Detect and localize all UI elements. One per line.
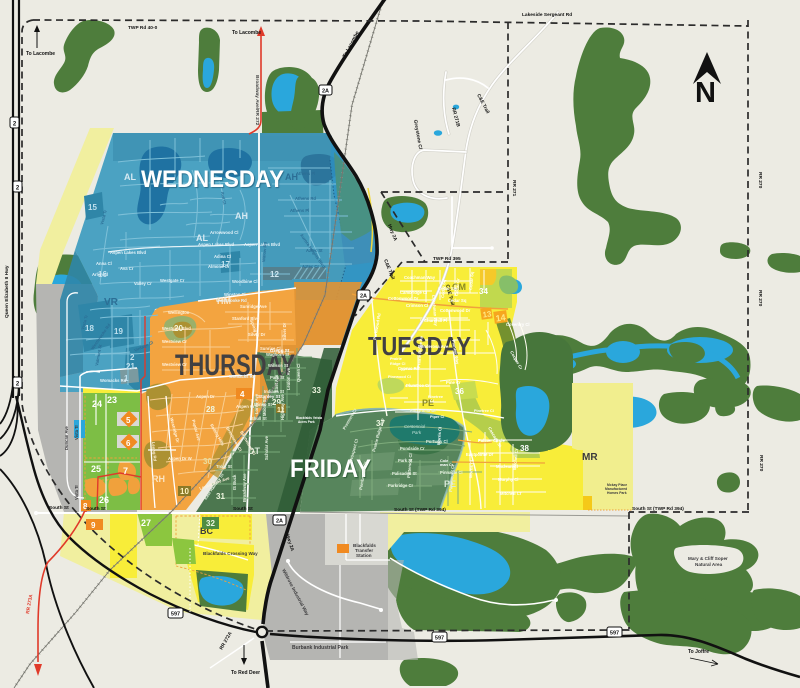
svg-text:24: 24 — [92, 399, 102, 409]
svg-text:Athens Pl: Athens Pl — [296, 171, 315, 176]
svg-text:21: 21 — [126, 362, 135, 371]
svg-text:Natural Area: Natural Area — [695, 562, 723, 567]
svg-text:Coventry Cl: Coventry Cl — [506, 322, 530, 327]
svg-text:Willson St: Willson St — [268, 363, 289, 368]
svg-text:RR 270: RR 270 — [757, 290, 763, 307]
svg-text:IS Buck: IS Buck — [232, 474, 237, 490]
svg-text:WEDNESDAY: WEDNESDAY — [141, 166, 284, 193]
svg-text:Aspen Dr W: Aspen Dr W — [168, 456, 192, 461]
svg-text:Westview Cr: Westview Cr — [162, 362, 187, 367]
svg-text:2A: 2A — [276, 519, 283, 525]
svg-text:TWP Rd 40-0: TWP Rd 40-0 — [128, 25, 158, 31]
svg-text:Queen Elizabeth II Hwy: Queen Elizabeth II Hwy — [4, 265, 10, 318]
svg-text:Athens Rd: Athens Rd — [295, 196, 316, 201]
svg-text:MR: MR — [582, 452, 598, 463]
svg-text:Parkridge Cr: Parkridge Cr — [388, 483, 414, 488]
svg-text:To Lacombe: To Lacombe — [232, 30, 261, 36]
svg-text:2A: 2A — [322, 89, 329, 95]
svg-text:31: 31 — [216, 492, 225, 501]
svg-text:Burbank Industrial Park: Burbank Industrial Park — [292, 645, 349, 651]
svg-text:Ava Cr: Ava Cr — [120, 266, 134, 271]
svg-text:Mitchell Cr: Mitchell Cr — [500, 491, 522, 496]
svg-text:Aspen Lakes Blvd: Aspen Lakes Blvd — [110, 250, 147, 255]
svg-text:6: 6 — [126, 439, 131, 448]
svg-text:Duncan Ave: Duncan Ave — [64, 425, 69, 450]
svg-text:34: 34 — [479, 287, 488, 296]
svg-text:Westgate Cr: Westgate Cr — [160, 278, 185, 283]
svg-text:Arlen Cl: Arlen Cl — [92, 272, 108, 277]
svg-text:Homes Park: Homes Park — [607, 491, 627, 495]
svg-text:10: 10 — [180, 487, 189, 496]
svg-text:RH: RH — [152, 474, 165, 484]
svg-text:Blackfalds Crossing Way: Blackfalds Crossing Way — [203, 551, 258, 556]
svg-text:33: 33 — [312, 386, 321, 395]
svg-text:Trout St: Trout St — [216, 464, 232, 469]
svg-text:Lorne Ave: Lorne Ave — [254, 393, 259, 414]
svg-text:Piper Cl: Piper Cl — [430, 415, 444, 419]
svg-text:Plumtree Cr: Plumtree Cr — [406, 383, 430, 388]
svg-text:Broadway Ave: Broadway Ave — [242, 473, 247, 502]
svg-text:7: 7 — [123, 466, 128, 476]
svg-text:2A: 2A — [360, 294, 367, 300]
svg-text:Sunrise Cl: Sunrise Cl — [260, 346, 281, 351]
svg-text:Vista Tr: Vista Tr — [74, 425, 79, 440]
svg-text:Portway Cl: Portway Cl — [426, 439, 448, 444]
svg-text:Womacks Rd: Womacks Rd — [229, 374, 256, 379]
svg-text:Prairie: Prairie — [390, 357, 402, 361]
svg-text:TWP Rd 395: TWP Rd 395 — [433, 256, 461, 262]
svg-text:Woodbine Cl: Woodbine Cl — [232, 279, 258, 284]
svg-text:Silver Dr: Silver Dr — [282, 322, 287, 340]
svg-text:South St (TWP Rd 394): South St (TWP Rd 394) — [632, 506, 684, 512]
svg-text:Cl: Cl — [430, 399, 434, 403]
svg-text:5: 5 — [126, 416, 131, 425]
svg-text:RR 270: RR 270 — [758, 455, 764, 472]
svg-text:26: 26 — [99, 495, 109, 505]
svg-text:Anna Cl: Anna Cl — [96, 261, 112, 266]
svg-text:13: 13 — [482, 309, 493, 319]
svg-text:Womacks Rd: Womacks Rd — [100, 378, 127, 383]
svg-text:Adina Cl: Adina Cl — [214, 254, 231, 259]
svg-text:Highway Ave: Highway Ave — [280, 394, 285, 420]
svg-text:N: N — [695, 77, 716, 109]
svg-text:4: 4 — [240, 390, 245, 399]
svg-text:Pondside Cr: Pondside Cr — [400, 446, 425, 451]
svg-text:15: 15 — [88, 203, 97, 212]
svg-text:Lakeside Sergeant Rd: Lakeside Sergeant Rd — [522, 12, 572, 18]
svg-text:Acres Park: Acres Park — [298, 420, 315, 424]
svg-text:RR 271: RR 271 — [511, 180, 517, 197]
svg-text:18: 18 — [85, 324, 94, 333]
svg-text:Lealon Ave: Lealon Ave — [286, 367, 291, 390]
svg-text:Pine Cr: Pine Cr — [446, 380, 461, 385]
svg-text:Winston Pl: Winston Pl — [224, 292, 246, 297]
svg-text:Cottonwood Dr: Cottonwood Dr — [440, 308, 471, 313]
svg-text:Almond Cr: Almond Cr — [208, 264, 230, 269]
svg-text:Aspen Cr: Aspen Cr — [236, 404, 255, 409]
svg-text:AH: AH — [235, 211, 248, 221]
svg-text:30: 30 — [203, 457, 212, 466]
svg-text:South St: South St — [233, 506, 253, 512]
svg-text:Valley Cr: Valley Cr — [134, 281, 152, 286]
svg-text:AL: AL — [124, 172, 136, 182]
svg-text:Aspen Lakes Blvd: Aspen Lakes Blvd — [198, 242, 235, 247]
svg-text:Westview Cr: Westview Cr — [162, 339, 187, 344]
svg-text:Pinewood Cl: Pinewood Cl — [388, 375, 411, 379]
svg-text:South St: South St — [49, 505, 69, 511]
svg-text:VR: VR — [104, 297, 119, 308]
svg-text:Ridge Cl: Ridge Cl — [390, 362, 405, 366]
svg-text:Cambridge Cl: Cambridge Cl — [400, 290, 427, 295]
svg-text:Waghorn St: Waghorn St — [266, 352, 290, 357]
svg-text:19: 19 — [114, 327, 123, 336]
svg-text:Vista Tr: Vista Tr — [74, 485, 79, 500]
svg-text:9: 9 — [91, 521, 96, 530]
svg-text:14: 14 — [495, 312, 506, 323]
svg-text:Panorama Dr: Panorama Dr — [410, 408, 436, 413]
svg-text:South St: South St — [86, 506, 106, 512]
svg-text:Cedar Sq: Cedar Sq — [448, 298, 467, 303]
svg-text:Stanford Blvd: Stanford Blvd — [232, 316, 260, 321]
svg-text:Aztec Cr: Aztec Cr — [302, 264, 319, 269]
svg-text:Coachman Way: Coachman Way — [404, 275, 436, 280]
svg-text:32: 32 — [206, 519, 215, 528]
svg-text:To Red Deer: To Red Deer — [231, 670, 260, 676]
svg-text:597: 597 — [435, 636, 444, 642]
svg-text:Station: Station — [356, 553, 372, 558]
svg-text:Arrowwood Cl: Arrowwood Cl — [210, 230, 238, 235]
svg-text:To Joffre: To Joffre — [688, 649, 709, 655]
svg-text:East Ave: East Ave — [274, 374, 279, 392]
svg-text:Queen Cl: Queen Cl — [296, 364, 301, 382]
svg-text:38: 38 — [520, 444, 529, 453]
svg-text:28: 28 — [206, 405, 215, 414]
svg-text:25: 25 — [91, 464, 101, 474]
svg-text:Sunridge Ave: Sunridge Ave — [240, 304, 267, 309]
svg-text:12: 12 — [270, 270, 279, 279]
svg-text:Centennial: Centennial — [404, 424, 426, 429]
svg-text:597: 597 — [171, 612, 180, 618]
svg-text:27: 27 — [141, 518, 151, 528]
svg-text:RR 270: RR 270 — [757, 172, 763, 189]
svg-text:Pinetree Cl: Pinetree Cl — [474, 409, 494, 413]
svg-text:23: 23 — [107, 395, 117, 405]
svg-text:Athens Pl: Athens Pl — [290, 208, 309, 213]
svg-text:Westbrooke Rd: Westbrooke Rd — [216, 298, 247, 303]
svg-text:2: 2 — [130, 353, 135, 362]
svg-text:Scholar Ave: Scholar Ave — [264, 435, 269, 460]
svg-text:Park: Park — [412, 430, 422, 435]
svg-text:Crimson Cl: Crimson Cl — [406, 303, 428, 308]
svg-text:Westglen Blvd: Westglen Blvd — [162, 326, 191, 331]
svg-text:Mary & Cliff Soper: Mary & Cliff Soper — [688, 556, 728, 561]
svg-text:South St (TWP Rd 394): South St (TWP Rd 394) — [394, 507, 446, 513]
svg-text:Murphy Cl: Murphy Cl — [498, 477, 518, 482]
svg-text:Broadway Ave/RR 272: Broadway Ave/RR 272 — [254, 75, 260, 126]
svg-text:Aspen Dr: Aspen Dr — [196, 394, 215, 399]
svg-text:597: 597 — [610, 631, 619, 637]
svg-text:36: 36 — [455, 387, 464, 396]
svg-text:Eastpointe Dr: Eastpointe Dr — [466, 452, 494, 457]
svg-text:Cottonwood Dr: Cottonwood Dr — [388, 296, 419, 301]
svg-text:Moore St: Moore St — [262, 397, 267, 416]
svg-text:Wellington: Wellington — [168, 310, 190, 315]
svg-text:Palisades St: Palisades St — [392, 471, 417, 476]
svg-text:To Lacombe: To Lacombe — [26, 51, 55, 57]
